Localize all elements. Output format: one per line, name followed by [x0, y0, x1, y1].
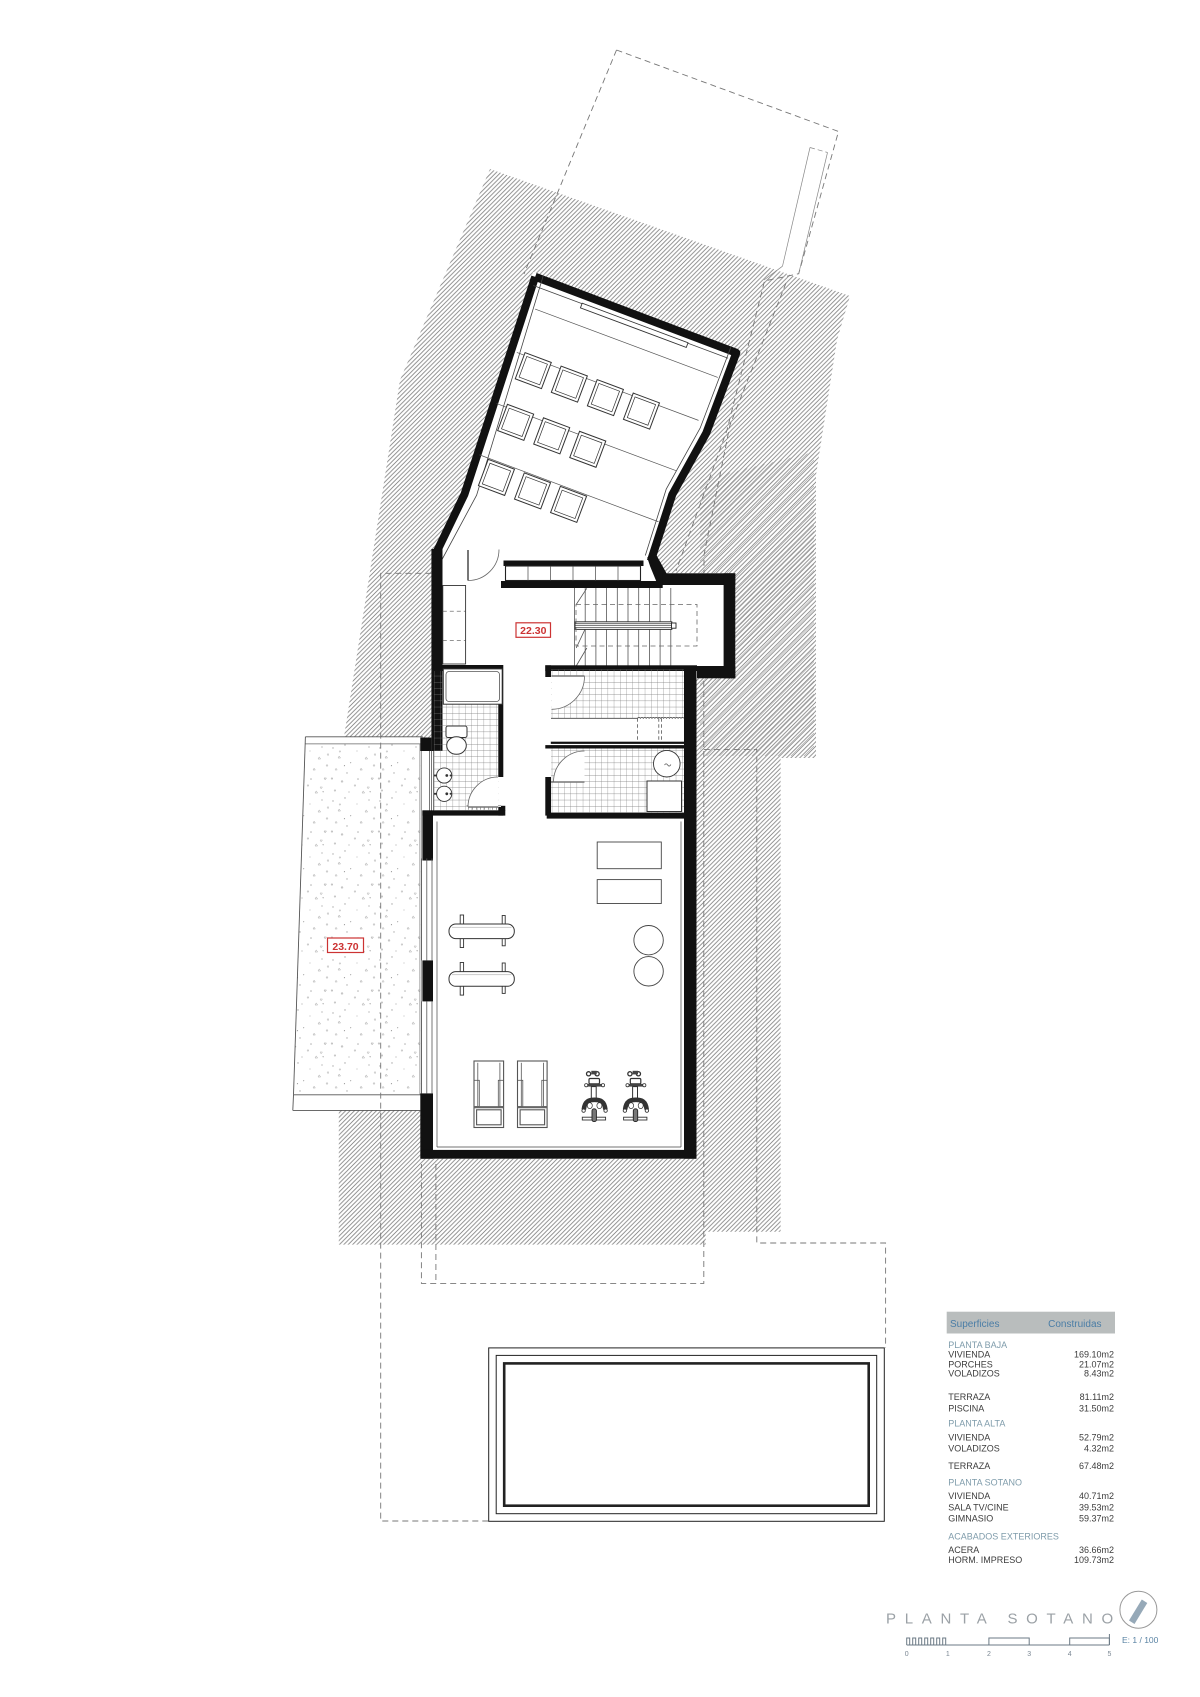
svg-text:E: 1 / 100: E: 1 / 100 — [1122, 1635, 1159, 1645]
svg-text:2: 2 — [987, 1651, 991, 1658]
svg-text:ACABADOS EXTERIORES: ACABADOS EXTERIORES — [948, 1532, 1059, 1542]
svg-text:81.11m2: 81.11m2 — [1080, 1392, 1114, 1402]
svg-text:PLANTA ALTA: PLANTA ALTA — [948, 1419, 1005, 1429]
svg-text:VOLADIZOS: VOLADIZOS — [948, 1369, 1000, 1379]
svg-text:Construidas: Construidas — [1048, 1319, 1101, 1330]
svg-text:Superficies: Superficies — [950, 1319, 999, 1330]
svg-text:TERRAZA: TERRAZA — [948, 1461, 990, 1471]
svg-text:36.66m2: 36.66m2 — [1079, 1545, 1114, 1555]
svg-text:PLANTA SOTANO: PLANTA SOTANO — [948, 1478, 1022, 1488]
svg-text:31.50m2: 31.50m2 — [1079, 1404, 1114, 1414]
svg-text:0: 0 — [905, 1651, 909, 1658]
svg-text:4.32m2: 4.32m2 — [1084, 1444, 1114, 1454]
svg-text:40.71m2: 40.71m2 — [1079, 1491, 1114, 1501]
svg-text:1: 1 — [946, 1651, 950, 1658]
svg-text:PLANTA BAJA: PLANTA BAJA — [948, 1340, 1007, 1350]
svg-text:TERRAZA: TERRAZA — [948, 1392, 990, 1402]
svg-text:67.48m2: 67.48m2 — [1079, 1461, 1114, 1471]
svg-text:23.70: 23.70 — [332, 941, 358, 953]
svg-text:SALA TV/CINE: SALA TV/CINE — [948, 1503, 1008, 1513]
svg-text:52.79m2: 52.79m2 — [1079, 1433, 1114, 1443]
svg-text:5: 5 — [1107, 1651, 1111, 1658]
svg-text:VIVIENDA: VIVIENDA — [948, 1491, 990, 1501]
svg-text:4: 4 — [1068, 1651, 1072, 1658]
svg-text:PISCINA: PISCINA — [948, 1404, 984, 1414]
svg-text:3: 3 — [1027, 1651, 1031, 1658]
svg-text:39.53m2: 39.53m2 — [1079, 1503, 1114, 1513]
svg-text:59.37m2: 59.37m2 — [1079, 1514, 1114, 1524]
svg-text:GIMNASIO: GIMNASIO — [948, 1514, 993, 1524]
svg-text:22.30: 22.30 — [520, 625, 546, 637]
svg-text:8.43m2: 8.43m2 — [1084, 1369, 1114, 1379]
svg-text:HORM. IMPRESO: HORM. IMPRESO — [948, 1555, 1022, 1565]
svg-text:VIVIENDA: VIVIENDA — [948, 1433, 990, 1443]
svg-text:ACERA: ACERA — [948, 1545, 979, 1555]
svg-text:PLANTA SOTANO: PLANTA SOTANO — [886, 1611, 1122, 1628]
svg-text:169.10m2: 169.10m2 — [1074, 1350, 1114, 1360]
svg-text:VOLADIZOS: VOLADIZOS — [948, 1444, 1000, 1454]
svg-text:VIVIENDA: VIVIENDA — [948, 1350, 990, 1360]
svg-text:109.73m2: 109.73m2 — [1074, 1555, 1114, 1565]
